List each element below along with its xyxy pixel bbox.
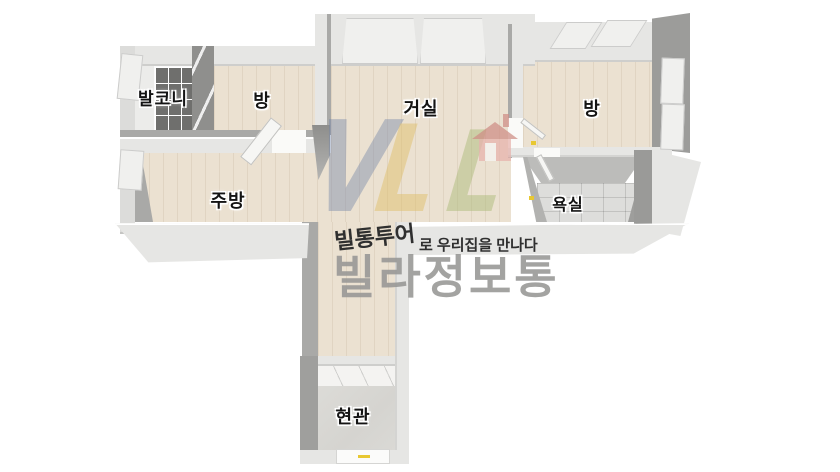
house-window — [485, 143, 496, 161]
watermark-tagline-bold: 빌통투어 — [333, 216, 417, 256]
room-label-kitchen: 주방 — [210, 187, 245, 213]
face-right-angled — [652, 150, 701, 236]
watermark-house-icon — [472, 112, 518, 168]
room-label-bathroom: 욕실 — [552, 191, 583, 215]
living-window-left — [342, 18, 418, 64]
room-label-room-left: 방 — [253, 87, 271, 113]
room-label-entrance: 현관 — [335, 403, 370, 429]
entrance-door-accent — [358, 455, 370, 458]
wall-balcony-divider — [192, 46, 214, 138]
room-left-door-opening — [272, 130, 306, 153]
floor-plan: V L L 빌통투어 로 우리집을 만나다 빌라정보통 발코니 방 거실 방 주… — [0, 0, 840, 472]
room-right-window-bottom — [660, 104, 685, 151]
room-right-window-top — [660, 58, 685, 105]
entrance-shoe-cabinet — [318, 366, 395, 386]
wall-entrance-left — [300, 356, 318, 460]
room-right-door-accent — [531, 141, 536, 145]
kitchen-side-window — [118, 149, 145, 191]
wall-living-left — [315, 14, 331, 135]
house-roof — [472, 122, 518, 139]
wall-bathroom-right — [634, 150, 652, 228]
room-label-room-right: 방 — [583, 95, 601, 121]
room-label-balcony: 발코니 — [138, 85, 188, 110]
wall-entrance-divider — [314, 356, 395, 366]
band-bottom-left — [115, 222, 311, 264]
room-label-living: 거실 — [403, 95, 438, 121]
bathroom-accent — [529, 196, 534, 200]
living-window-right — [420, 18, 486, 64]
watermark-logo-text: 빌라정보통 — [333, 254, 560, 300]
wall-top-left — [120, 46, 316, 66]
